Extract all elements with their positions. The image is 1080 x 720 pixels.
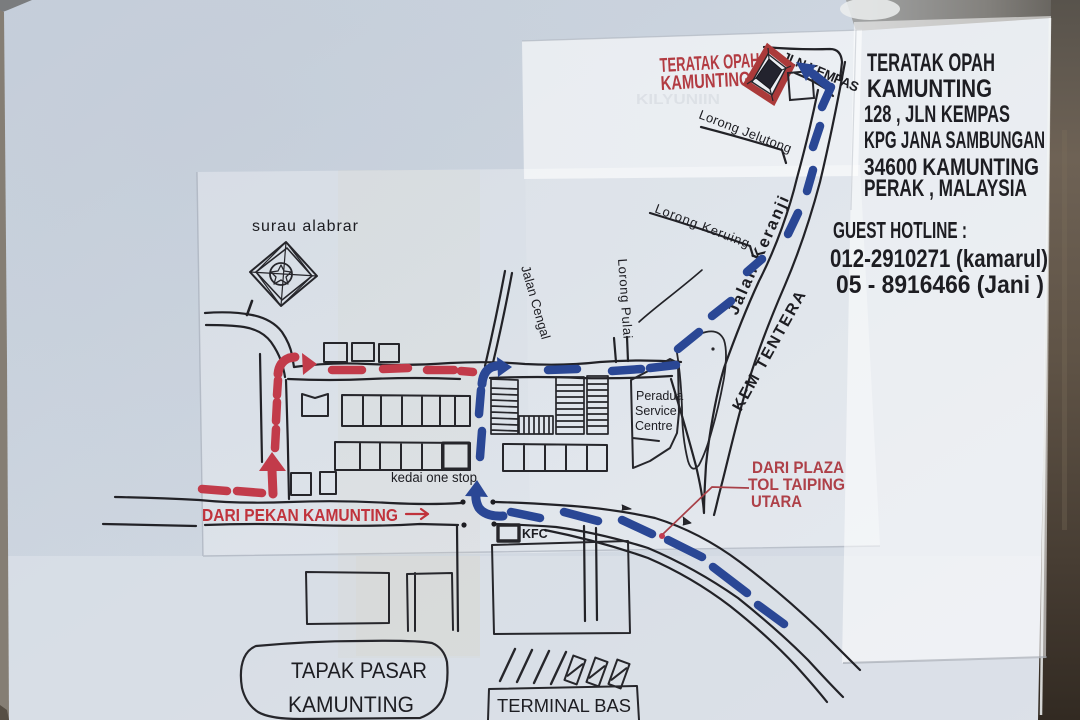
svg-text:PERAK , MALAYSIA: PERAK , MALAYSIA [864, 175, 1027, 202]
svg-text:Service: Service [635, 404, 677, 418]
svg-text:TERMINAL BAS: TERMINAL BAS [497, 696, 631, 716]
svg-text:TERATAK OPAH: TERATAK OPAH [867, 49, 995, 77]
svg-text:KAMUNTING: KAMUNTING [660, 68, 751, 95]
svg-text:KPG JANA SAMBUNGAN: KPG JANA SAMBUNGAN [864, 127, 1045, 154]
svg-text:128 , JLN KEMPAS: 128 , JLN KEMPAS [864, 101, 1010, 128]
svg-text:KFC: KFC [522, 527, 548, 541]
svg-text:kedai one stop: kedai one stop [391, 470, 477, 485]
svg-text:012-2910271 (kamarul): 012-2910271 (kamarul) [830, 245, 1048, 273]
svg-text:GUEST HOTLINE :: GUEST HOTLINE : [833, 217, 967, 243]
svg-text:TAPAK PASAR: TAPAK PASAR [291, 658, 427, 683]
svg-text:Centre: Centre [635, 419, 673, 433]
svg-text:UTARA: UTARA [751, 492, 802, 511]
svg-text:Peradua: Peradua [636, 389, 683, 403]
svg-text:KAMUNTING: KAMUNTING [867, 75, 992, 103]
svg-text:KAMUNTING: KAMUNTING [288, 692, 414, 717]
svg-text:surau alabrar: surau alabrar [252, 218, 359, 235]
svg-text:DARI PEKAN KAMUNTING: DARI PEKAN KAMUNTING [202, 505, 398, 525]
svg-text:05 - 8916466 (Jani ): 05 - 8916466 (Jani ) [836, 271, 1044, 299]
